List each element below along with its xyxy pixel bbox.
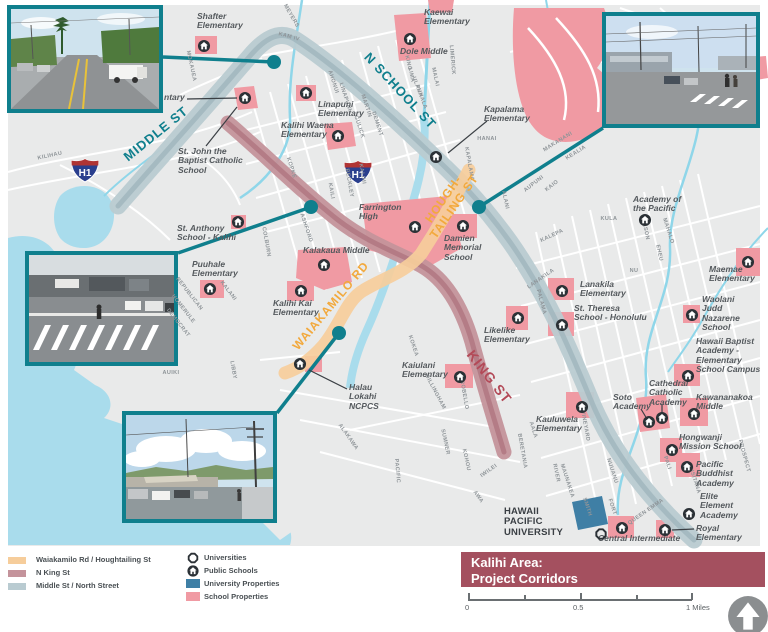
map-title-banner: Kalihi Area: Project Corridors [461, 552, 765, 587]
public-school-icon [300, 87, 313, 100]
school-label: Linapuni Elementary [318, 100, 364, 119]
public-school-icon [683, 508, 696, 521]
university-icon [595, 528, 608, 541]
public-school-icon [666, 444, 679, 457]
school-label: Soto Academy [613, 393, 651, 412]
public-school-icon [512, 312, 525, 325]
public-school-icon [688, 408, 701, 421]
public-school-icon [686, 309, 699, 322]
photo-inset-middle-st [7, 5, 163, 113]
school-label: Cathedral Catholic Academy [649, 379, 688, 407]
public-school-icon [409, 221, 422, 234]
scale-tick [636, 595, 638, 600]
public-school-icon [318, 259, 331, 272]
legend-swatch-orange [8, 557, 26, 564]
scale-label-one: 1 Miles [686, 603, 710, 612]
public-school-icon [204, 283, 217, 296]
legend-label: University Properties [204, 579, 279, 588]
school-label: Kalihi Waena Elementary [281, 121, 334, 140]
legend-swatch-university [186, 579, 200, 588]
school-label: St. John the Baptist Catholic School [178, 147, 243, 175]
school-label: St. Theresa School - Honolulu [574, 304, 647, 323]
legend-label: Middle St / North Street [36, 581, 119, 590]
school-label: ntary [164, 93, 185, 102]
scale-tick [468, 593, 470, 600]
school-label: HAWAII PACIFIC UNIVERSITY [504, 507, 563, 538]
public-school-icon [576, 401, 589, 414]
school-label: Kaiulani Elementary [402, 361, 448, 380]
legend-swatch-blue [8, 583, 26, 590]
public-school-icon [742, 256, 755, 269]
school-label: Lanakila Elementary [580, 280, 626, 299]
school-label: Likelike Elementary [484, 326, 530, 345]
scale-label-half: 0.5 [573, 603, 583, 612]
school-label: Kaewai Elementary [424, 8, 470, 27]
public-school-icon [198, 40, 211, 53]
school-label: Dole Middle [400, 47, 448, 56]
university-icon [187, 552, 199, 564]
school-label: Pacific Buddhist Academy [696, 460, 734, 488]
scale-tick [580, 593, 582, 600]
legend-label: Universities [204, 553, 247, 562]
public-school-icon [616, 522, 629, 535]
public-school-icon [556, 319, 569, 332]
legend-label: Public Schools [204, 566, 258, 575]
north-arrow-icon [727, 595, 768, 632]
street-label: HANAI [477, 136, 496, 142]
public-school-icon [294, 358, 307, 371]
school-label: Kalihi Kai Elementary [273, 299, 319, 318]
public-school-icon [232, 216, 245, 229]
map-title-line2: Project Corridors [471, 571, 765, 587]
scale-tick [691, 593, 693, 600]
public-school-icon [681, 461, 694, 474]
school-label: Farrington High [359, 203, 402, 222]
photo-inset-waiakamilo-rd [122, 411, 277, 523]
legend-label: School Properties [204, 592, 268, 601]
scale-tick [524, 595, 526, 600]
school-label: Hawaii Baptist Academy - Elementary Scho… [696, 337, 760, 374]
public-school-icon [682, 370, 695, 383]
public-school-icon [556, 285, 569, 298]
public-school-icon [659, 524, 672, 537]
legend-swatch-mauve [8, 570, 26, 577]
school-label: St. Anthony School - Kalihi [177, 224, 236, 243]
scale-label-zero: 0 [465, 603, 469, 612]
school-label: Kauluwela Elementary [536, 415, 582, 434]
school-label: Halau Lokahi NCPCS [349, 383, 379, 411]
street-label: NU [630, 268, 639, 274]
school-label: Kawananakoa Middle [696, 393, 753, 412]
school-label: Puuhale Elementary [192, 260, 238, 279]
public-school-icon [332, 130, 345, 143]
legend-label: N King St [36, 568, 70, 577]
school-label: Shafter Elementary [197, 12, 243, 31]
public-school-icon [430, 151, 443, 164]
public-school-icon [454, 371, 467, 384]
public-school-icon [187, 565, 199, 577]
legend-label: Waiakamilo Rd / Houghtailing St [36, 555, 151, 564]
school-label: Kalakaua Middle [303, 246, 370, 255]
school-label: Damien Memorial School [444, 234, 481, 262]
public-school-icon [295, 285, 308, 298]
photo-inset-school-st [602, 12, 760, 128]
school-label: Kapalama Elementary [484, 105, 530, 124]
map-title-line1: Kalihi Area: [471, 555, 765, 571]
h1-interstate-shield: H1 [70, 158, 100, 183]
svg-text:H1: H1 [79, 168, 92, 179]
public-school-icon [639, 214, 652, 227]
school-label: Royal Elementary [696, 524, 742, 543]
school-label: Hongwanji Mission School [679, 433, 741, 452]
public-school-icon [643, 416, 656, 429]
school-label: Elite Element Academy [700, 492, 738, 520]
street-label: KULA [601, 216, 618, 222]
school-label: Academy of the Pacific [633, 195, 681, 214]
public-school-icon [656, 412, 669, 425]
public-school-icon [404, 33, 417, 46]
photo-inset-king-st [25, 251, 178, 366]
school-label: Waolani Judd Nazarene School [702, 295, 740, 332]
legend-swatch-school [186, 592, 200, 601]
public-school-icon [457, 220, 470, 233]
street-label: AUIKI [163, 370, 180, 376]
public-school-icon [239, 92, 252, 105]
kalihi-project-corridors-map: H1 H1 KILIHAUMOKAUEAMEYERSKAM IVAHONUILI… [0, 0, 768, 632]
